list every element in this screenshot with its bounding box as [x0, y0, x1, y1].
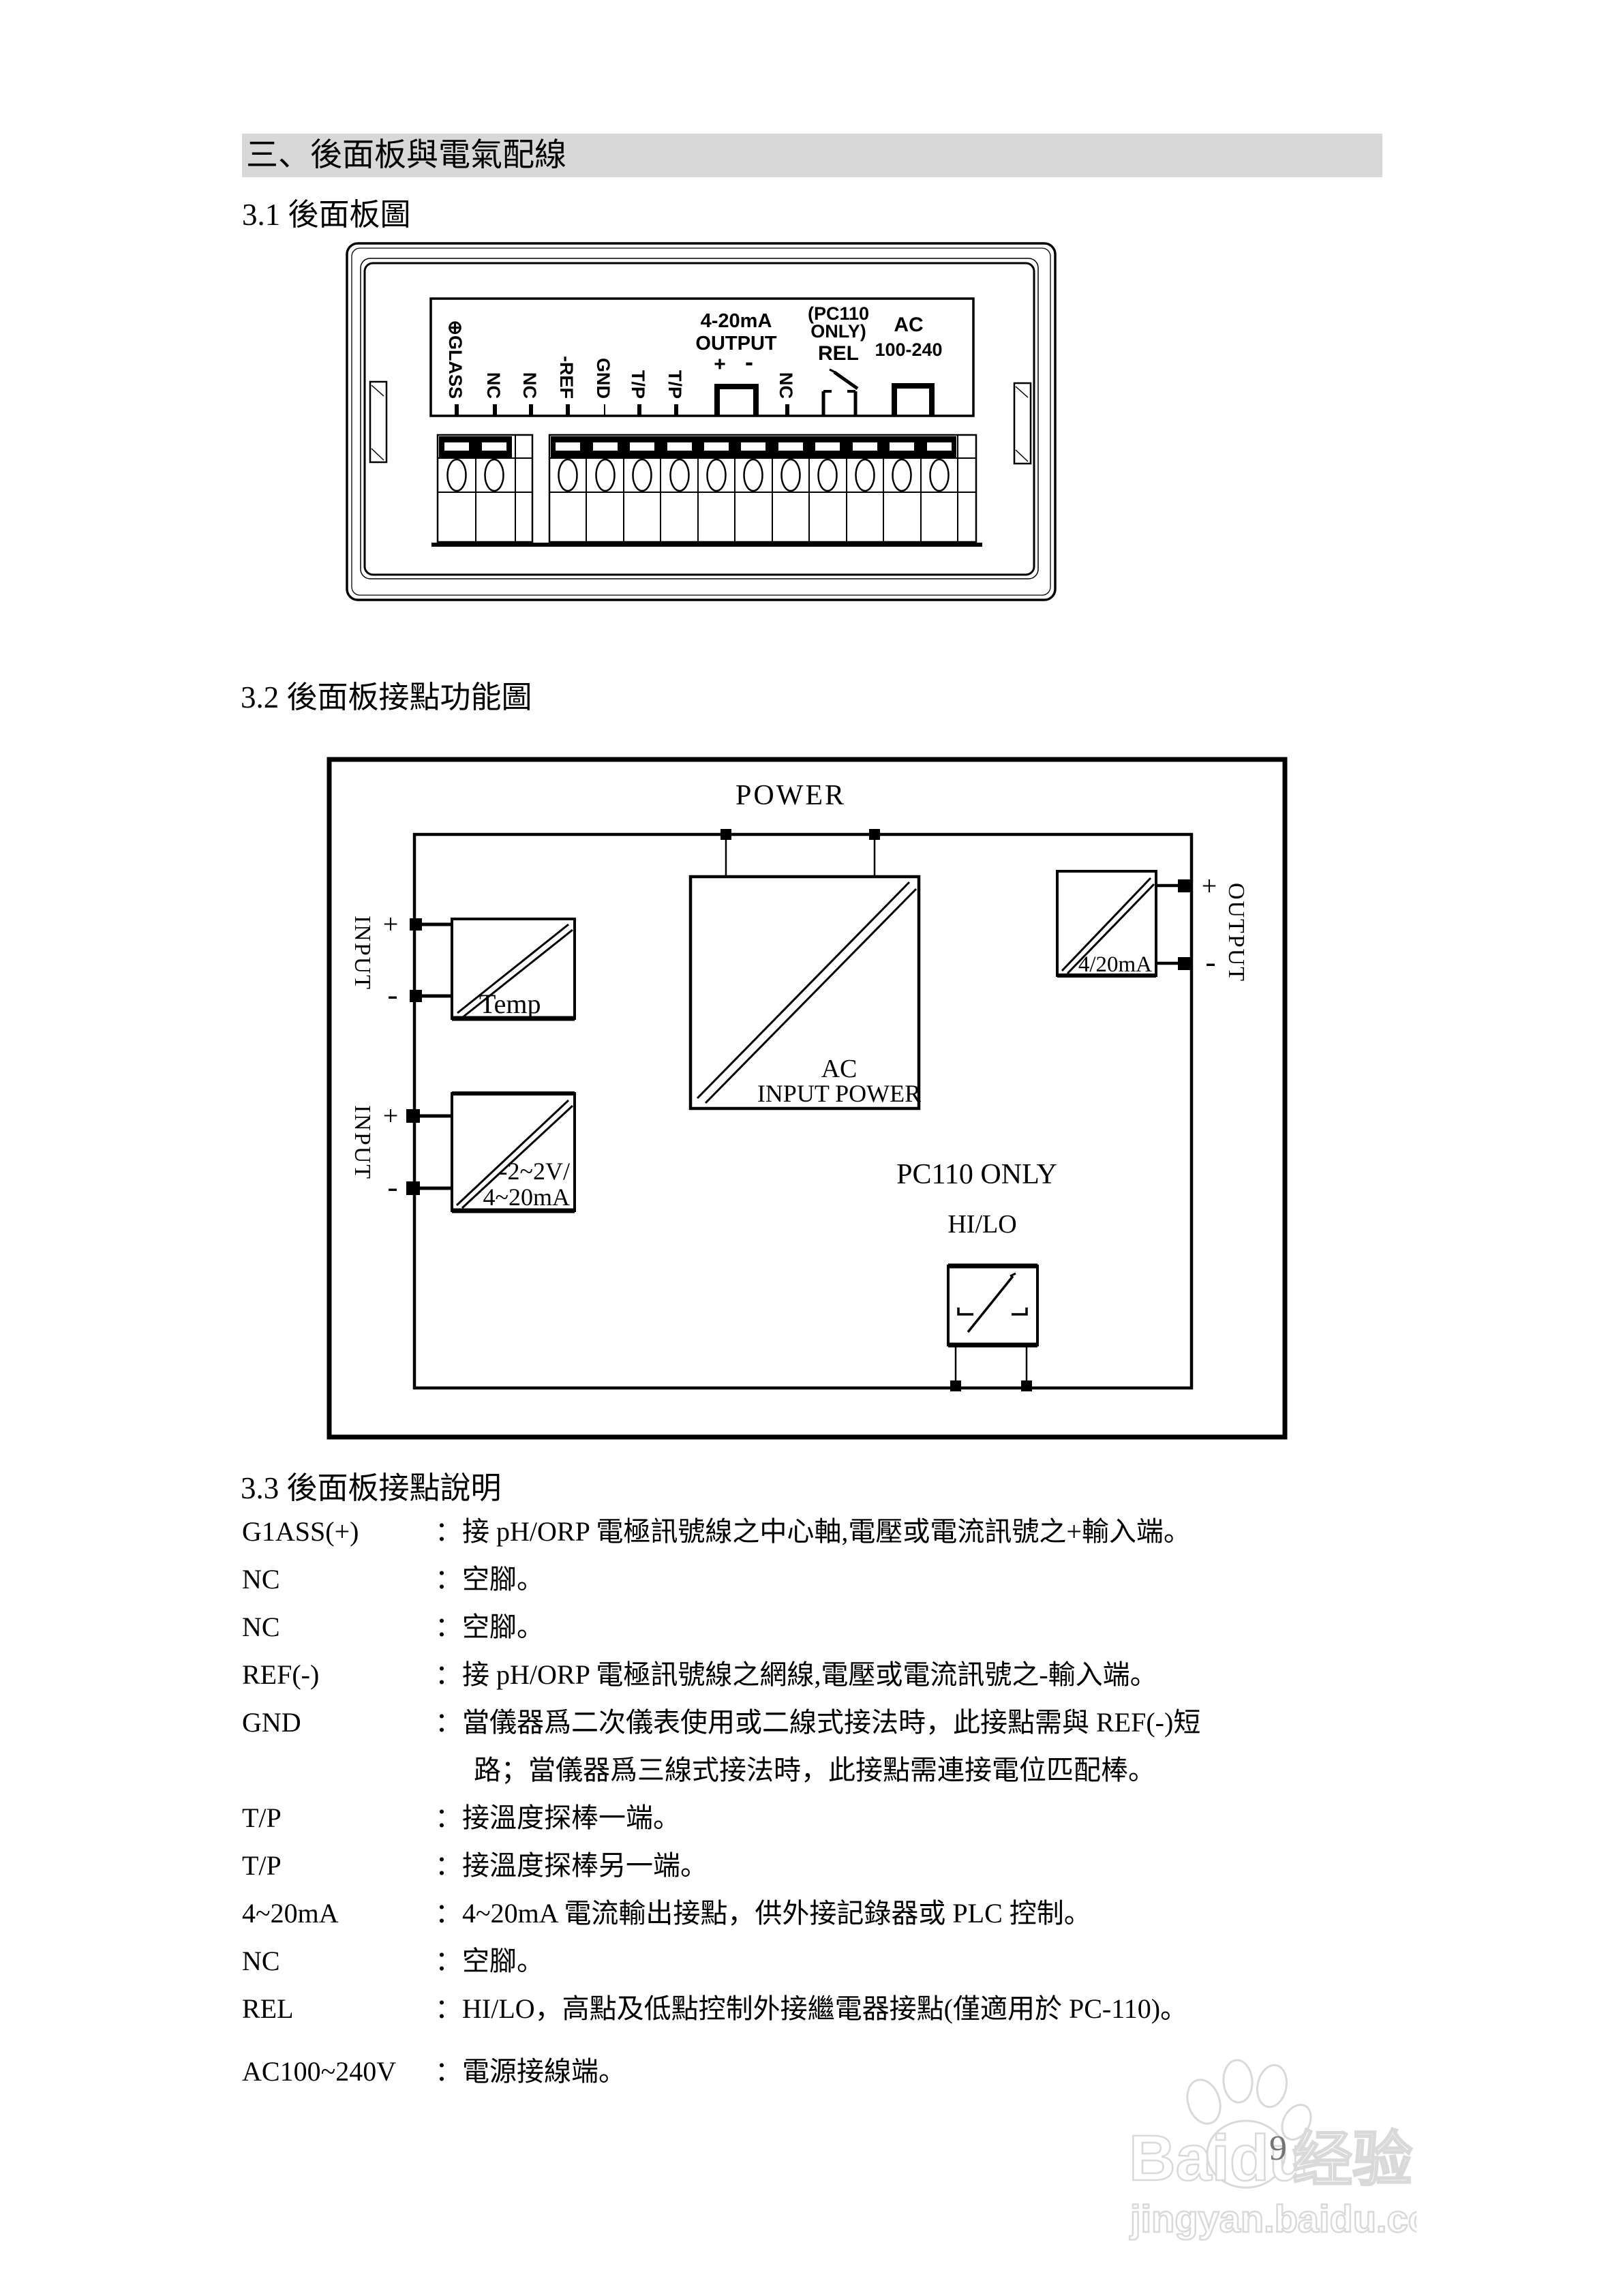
terminal-desc: ：當儀器爲二次儀表使用或二線式接法時，此接點需與 REF(-)短: [435, 1699, 1200, 1747]
panel-label-only: ONLY): [810, 321, 866, 342]
panel-label-output: OUTPUT: [695, 333, 777, 354]
terminal-name: NC: [242, 1937, 280, 1985]
baidu-brand-cn: 经验: [1292, 2126, 1412, 2193]
panel-label-tp1: T/P: [628, 370, 648, 399]
panel-label-rel: REL: [818, 342, 859, 365]
terminal-name: REL: [242, 1985, 294, 2033]
panel-label-100-240: 100-240: [875, 339, 942, 360]
table-row: NC ：空腳。: [242, 1556, 1442, 1603]
table-row: G1ASS(+) ：接 pH/ORP 電極訊號線之中心軸,電壓或電流訊號之+輸入…: [242, 1508, 1442, 1556]
section-header-bar: 三、後面板與電氣配線: [242, 134, 1382, 177]
table-row: REF(-) ：接 pH/ORP 電極訊號線之網線,電壓或電流訊號之-輸入端。: [242, 1651, 1442, 1699]
panel-label-glass: ⊕GLASS: [445, 320, 466, 399]
output-box-label: 4/20mA: [1078, 952, 1152, 977]
terminal-name: NC: [242, 1603, 280, 1651]
terminal-label-box: ⊕GLASS NC NC -REF GND T/P T/P NC 4-20mA: [431, 299, 973, 416]
terminal-name: G1ASS(+): [242, 1508, 359, 1556]
panel-label-ac: AC: [894, 314, 923, 336]
input-label-1: INPUT: [350, 916, 375, 991]
terminal-name: T/P: [242, 1842, 282, 1890]
hilo-label: HI/LO: [947, 1210, 1016, 1239]
section-header: 三、後面板與電氣配線: [246, 138, 566, 173]
terminal-desc: ：HI/LO，高點及低點控制外接繼電器接點(僅適用於 PC-110)。: [435, 1985, 1187, 2033]
table-row: T/P ：接溫度探棒另一端。: [242, 1842, 1442, 1890]
terminal-desc-cont: 路；當儀器爲三線式接法時，此接點需連接電位匹配棒。: [474, 1747, 1155, 1794]
ac-box-label-1: AC: [821, 1055, 858, 1083]
rear-panel-diagram: ⊕GLASS NC NC -REF GND T/P T/P NC 4-20mA: [344, 241, 1060, 605]
temp-minus: -: [387, 977, 397, 1012]
label-ticks: [457, 404, 787, 415]
output-minus: -: [1205, 944, 1215, 979]
plus-sign: +: [714, 353, 726, 376]
bus-loop: [414, 834, 1192, 1388]
output-label-group: 4-20mA OUTPUT + -: [695, 310, 777, 416]
terminal-desc: ：電源接線端。: [435, 2048, 626, 2096]
panel-label-tp2: T/P: [665, 370, 685, 399]
terminal-name: GND: [242, 1699, 301, 1747]
terminal-name: REF(-): [242, 1651, 319, 1699]
baidu-url-text: jingyan.baidu.com: [1129, 2197, 1416, 2240]
signal-box-label-1: -2~2V/: [500, 1158, 570, 1185]
signal-plus: +: [383, 1100, 399, 1131]
terminal-desc: ：接溫度探棒另一端。: [435, 1842, 708, 1890]
input-label-2: INPUT: [350, 1105, 375, 1180]
panel-label-nc2: NC: [519, 372, 540, 399]
baidu-watermark: Baidu 经验 jingyan.baidu.com 9: [1123, 2051, 1416, 2262]
ac-label-group: AC 100-240: [875, 314, 942, 416]
panel-label-gnd: GND: [593, 358, 613, 399]
terminal-desc: ：接 pH/ORP 電極訊號線之中心軸,電壓或電流訊號之+輸入端。: [435, 1508, 1191, 1556]
relay-switch-icon: [823, 369, 858, 416]
ac-input-power-box: AC INPUT POWER: [691, 877, 921, 1108]
pc110-only-label: PC110 ONLY: [896, 1159, 1057, 1190]
temp-input-box: Temp + - INPUT: [350, 909, 575, 1019]
terminal-strip: [431, 435, 982, 545]
s32-title: 3.2 後面板接點功能圖: [241, 672, 532, 716]
output-plus: +: [1202, 871, 1217, 901]
table-row: GND ：當儀器爲二次儀表使用或二線式接法時，此接點需與 REF(-)短 路；當…: [242, 1699, 1442, 1794]
output-420ma-box: 4/20mA + - OUTPUT: [1057, 871, 1249, 982]
table-row: NC ：空腳。: [242, 1937, 1442, 1985]
pc110-relay-group: PC110 ONLY HI/LO: [896, 1159, 1057, 1391]
rel-label-group: (PC110 ONLY) REL: [808, 303, 869, 416]
terminal-desc: ：空腳。: [435, 1937, 544, 1985]
wiring-block-diagram: POWER AC INPUT POWER Temp: [326, 754, 1307, 1442]
temp-plus: +: [383, 909, 399, 939]
terminal-name: NC: [242, 1556, 280, 1603]
s33-title: 3.3 後面板接點說明: [241, 1463, 502, 1507]
terminal-name: AC100~240V: [242, 2048, 396, 2096]
ac-box-label-2: INPUT POWER: [757, 1080, 921, 1107]
terminal-name: 4~20mA: [242, 1890, 339, 1937]
power-drop-wires: [721, 829, 880, 877]
s31-title: 3.1 後面板圖: [242, 190, 411, 234]
output-label: OUTPUT: [1224, 883, 1249, 982]
terminal-desc: ：接溫度探棒一端。: [435, 1794, 680, 1842]
signal-box-label-2: 4~20mA: [483, 1183, 570, 1211]
terminal-name: T/P: [242, 1794, 282, 1842]
terminal-description-list: G1ASS(+) ：接 pH/ORP 電極訊號線之中心軸,電壓或電流訊號之+輸入…: [242, 1508, 1442, 2096]
relay-contact-icon: [958, 1273, 1027, 1332]
document-page: 三、後面板與電氣配線 3.1 後面板圖 ⊕GLASS: [0, 0, 1623, 2296]
terminal-desc: ：空腳。: [435, 1556, 544, 1603]
ac-terminal-bracket-icon: [894, 386, 932, 416]
output-terminal-bracket-icon: [717, 387, 756, 416]
signal-input-box: -2~2V/ 4~20mA + - INPUT: [350, 1093, 575, 1211]
minus-sign: -: [745, 348, 753, 376]
mounting-ear-right: [1014, 383, 1031, 464]
terminal-desc: ：接 pH/ORP 電極訊號線之網線,電壓或電流訊號之-輸入端。: [435, 1651, 1157, 1699]
table-row: REL ：HI/LO，高點及低點控制外接繼電器接點(僅適用於 PC-110)。: [242, 1985, 1442, 2033]
temp-box-label: Temp: [479, 988, 541, 1019]
panel-label-nc3: NC: [776, 372, 796, 399]
terminal-desc: ：空腳。: [435, 1603, 544, 1651]
table-row: T/P ：接溫度探棒一端。: [242, 1794, 1442, 1842]
panel-label-ref: -REF: [556, 356, 577, 399]
mounting-ear-left: [370, 382, 386, 462]
panel-label-nc1: NC: [483, 372, 504, 399]
signal-minus: -: [387, 1169, 397, 1204]
table-row: NC ：空腳。: [242, 1603, 1442, 1651]
power-label: POWER: [735, 780, 846, 811]
terminal-desc: ：4~20mA 電流輸出接點，供外接記錄器或 PLC 控制。: [435, 1890, 1091, 1937]
page-number: 9: [1269, 2129, 1287, 2168]
panel-label-420ma: 4-20mA: [701, 310, 772, 332]
table-row: 4~20mA ：4~20mA 電流輸出接點，供外接記錄器或 PLC 控制。: [242, 1890, 1442, 1937]
